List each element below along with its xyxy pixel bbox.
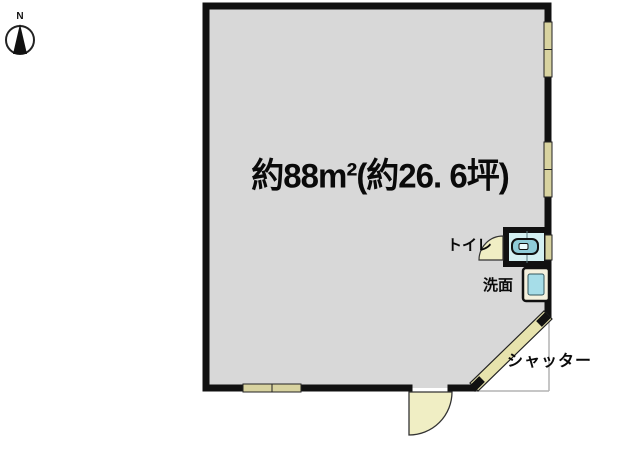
compass: N — [6, 11, 34, 54]
washbasin — [523, 268, 549, 301]
toilet-window — [545, 235, 552, 260]
toilet-fixture-detail — [519, 244, 528, 250]
floorplan-page: N — [0, 0, 620, 474]
window-right-upper — [544, 22, 552, 77]
window-bottom — [243, 384, 301, 392]
shutter-label: シャッター — [507, 347, 592, 371]
washbasin-label: 洗面 — [483, 274, 513, 295]
room-area-label: 約88m²(約26. 6坪) — [205, 148, 555, 198]
compass-north-label: N — [16, 11, 23, 22]
compass-needle-icon — [13, 24, 27, 54]
toilet-label: トイレ — [447, 234, 492, 255]
floorplan-drawing: N — [0, 0, 620, 474]
washbasin-bowl-icon — [528, 274, 544, 295]
entry-door-swing — [409, 392, 452, 435]
